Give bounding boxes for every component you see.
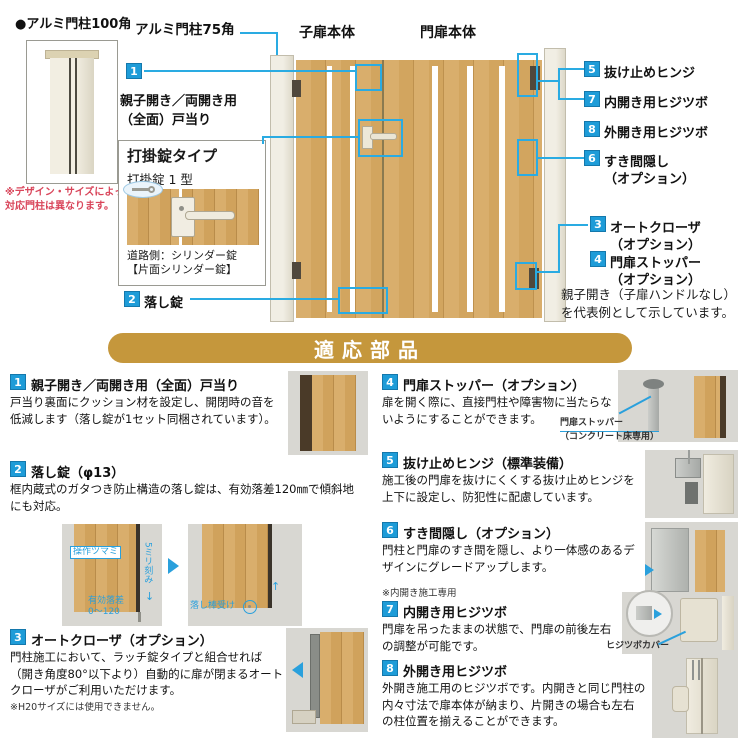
- leader-line: [558, 224, 588, 226]
- child-door: [296, 60, 382, 318]
- callout-box-gap-cover: [517, 139, 538, 176]
- hijitsubo-cover: [680, 598, 718, 642]
- leader-line: [240, 32, 278, 34]
- part2-label-tsumami: 操作ツマミ: [70, 546, 121, 559]
- callout-1-label: 親子開き／両開き用 （全面）戸当り: [120, 90, 237, 128]
- hinge-mark: [292, 262, 301, 279]
- receiver-dot: [248, 605, 251, 608]
- callout-5-badge: 5: [584, 61, 600, 77]
- door-slit: [467, 66, 473, 312]
- leader-line: [262, 136, 264, 144]
- hijitsubo-knuckle: [672, 686, 689, 712]
- gate-right-post: [544, 48, 566, 322]
- lock-type-title: 打掛錠タイプ: [127, 145, 217, 166]
- leader-line: [262, 136, 360, 138]
- leader-line: [144, 70, 355, 72]
- part6-desc: 門柱と門扉のすき間を隠し、より一体感のあるデザインにグレードアップします。: [382, 542, 640, 575]
- door-slit: [350, 66, 355, 312]
- drop-bolt-edge2: [268, 524, 272, 608]
- callout-3-label2: （オプション）: [610, 234, 701, 253]
- part7-badge: 7: [382, 601, 398, 617]
- key-icon: [123, 181, 163, 198]
- callout-1-label-line1: 親子開き／両開き用: [120, 90, 237, 109]
- part4-caption-line2: （コンクリート床専用）: [560, 432, 659, 444]
- stopper-door-edge: [720, 376, 726, 438]
- catalog-page: ●アルミ門柱100角 ※デザイン・サイズによって 対応門柱は異なります。 アルミ…: [0, 0, 740, 740]
- closer-base: [292, 710, 316, 724]
- section-banner-title: 適応部品: [314, 334, 426, 363]
- post100-label: ●アルミ門柱100角: [15, 13, 131, 32]
- callout-7-badge: 7: [584, 91, 600, 107]
- part1-badge: 1: [10, 374, 26, 390]
- callout-box-hinge-top: [517, 53, 538, 97]
- lock-lever: [185, 211, 235, 220]
- part8-title: 外開き用ヒジツボ: [403, 661, 507, 680]
- main-door-label: 門扉本体: [420, 22, 476, 42]
- hijitsubo-pin: [692, 660, 694, 680]
- key-bow: [148, 186, 155, 193]
- part1-title: 親子開き／両開き用（全面）戸当り: [31, 375, 239, 394]
- hinge-post: [703, 454, 734, 514]
- part6-note: ※内開き施工専用: [382, 585, 456, 599]
- part2-label-rakusa-line2: 0〜120: [88, 607, 124, 618]
- callout-8-badge: 8: [584, 121, 600, 137]
- part2-desc: 框内蔵式のガタつき防止構造の落し錠は、有効落差120㎜で傾斜地にも対応。: [10, 481, 362, 514]
- door-slit: [327, 66, 332, 312]
- post-groove: [69, 58, 71, 174]
- arrow-right-icon: [654, 609, 662, 619]
- post100-note-line2: 対応門柱は異なります。: [5, 200, 134, 214]
- callout-box-todomari: [355, 64, 382, 91]
- arrow-up-icon: ↑: [271, 580, 280, 594]
- leader-line: [558, 98, 584, 100]
- part2-label-rakusa: 有効落差 0〜120: [88, 596, 124, 619]
- callout-4-badge: 4: [590, 251, 606, 267]
- part5-desc: 施工後の門扉を抜けにくくする抜け止めヒンジを上下に設定し、防犯性に配慮しています…: [382, 472, 640, 505]
- stopper-door: [694, 376, 720, 438]
- hijitsubo-metal: [636, 606, 652, 620]
- leader-line: [558, 224, 560, 273]
- door-center-gap: [382, 60, 384, 318]
- arrow-right-icon: [645, 564, 654, 576]
- post-groove: [75, 58, 77, 174]
- lock-keyhole: [179, 206, 184, 211]
- hinge-mark: [292, 80, 301, 97]
- callout-3-badge: 3: [590, 216, 606, 232]
- part8-desc: 外開き施工用のヒジツボです。内開きと同じ門柱の内々寸法で扉本体が納まり、片開きの…: [382, 680, 646, 730]
- door-slit: [432, 66, 438, 312]
- drop-bolt-edge: [136, 524, 140, 612]
- leader-line: [190, 298, 338, 300]
- part4-badge: 4: [382, 374, 398, 390]
- hinge-body: [685, 482, 698, 504]
- part8-photo: [652, 652, 738, 738]
- leader-line: [538, 80, 558, 82]
- post75-label: アルミ門柱75角: [135, 18, 235, 38]
- part5-badge: 5: [382, 452, 398, 468]
- leader-line: [558, 68, 560, 100]
- part6-badge: 6: [382, 522, 398, 538]
- closer-door: [320, 632, 364, 724]
- door-slit: [499, 66, 505, 312]
- part4-caption-line1: 門扉ストッパー: [560, 418, 659, 432]
- arrow-right-icon: [168, 558, 179, 574]
- part2-label-kizami: 5ミリ刻み: [141, 542, 152, 584]
- door-edge-wood: [312, 375, 356, 451]
- diagram-note: 親子開き（子扉ハンドルなし） を代表例として示しています。: [561, 286, 736, 321]
- diagram-note-line1: 親子開き（子扉ハンドルなし）: [561, 286, 736, 304]
- callout-6-label2: （オプション）: [604, 168, 695, 187]
- part3-badge: 3: [10, 629, 26, 645]
- callout-2-label: 落し錠: [144, 292, 183, 311]
- receiver-circle-icon: [243, 600, 257, 614]
- part5-photo: [645, 450, 738, 518]
- hijitsubo-post: [722, 596, 734, 650]
- lock-captions: 道路側：シリンダー錠 【片面シリンダー錠】: [127, 249, 237, 278]
- callout-8-label: 外開き用ヒジツボ: [604, 122, 708, 141]
- lock-type-box: 打掛錠タイプ 打掛錠 1 型 道路側：シリンダー錠 【片面シリンダー錠】: [118, 140, 266, 286]
- part3-title: オートクローザ（オプション）: [31, 630, 213, 649]
- part1-desc: 戸当り裏面にクッション材を設定し、開閉時の音を低減します（落し錠が1セット同梱さ…: [10, 394, 282, 427]
- gap-cover-post: [651, 528, 689, 592]
- part7-title: 内開き用ヒジツボ: [403, 602, 507, 621]
- callout-5-label: 抜け止めヒンジ: [604, 62, 695, 81]
- post-body: [50, 58, 94, 174]
- child-door-label: 子扉本体: [299, 22, 355, 42]
- callout-2-badge: 2: [124, 291, 140, 307]
- callout-1-label-line2: （全面）戸当り: [120, 109, 237, 128]
- part3-desc: 門柱施工において、ラッチ錠タイプと組合せれば（開き角度80°以下より）自動的に扉…: [10, 649, 284, 699]
- part3-photo: [286, 628, 368, 732]
- callout-box-lock: [358, 119, 403, 157]
- part5-title: 抜け止めヒンジ（標準装備）: [403, 453, 572, 472]
- arrow-down-icon: ↓: [145, 590, 154, 604]
- diagram-note-line2: を代表例として示しています。: [561, 304, 736, 322]
- part3-note: ※H20サイズには使用できません。: [10, 699, 160, 713]
- drop-bolt-door2: [202, 524, 268, 608]
- post100-note: ※デザイン・サイズによって 対応門柱は異なります。: [5, 186, 134, 213]
- gate-left-post: [270, 55, 294, 322]
- section-banner: 適応部品: [108, 333, 632, 363]
- part6-title: すき間隠し（オプション）: [403, 523, 559, 542]
- leader-line: [537, 271, 558, 273]
- callout-7-label: 内開き用ヒジツボ: [604, 92, 708, 111]
- closer-bar: [310, 634, 320, 718]
- part2-badge: 2: [10, 461, 26, 477]
- post100-photo: [26, 40, 118, 184]
- part6-photo: [645, 522, 738, 596]
- callout-1-badge: 1: [126, 63, 142, 79]
- part2-label-uke: 落し棒受け: [190, 601, 235, 612]
- part1-photo: [288, 371, 368, 455]
- post100-note-line1: ※デザイン・サイズによって: [5, 186, 134, 200]
- hijitsubo-pin: [698, 660, 700, 680]
- part4-caption: 門扉ストッパー （コンクリート床専用）: [560, 418, 659, 443]
- gap-cover-door: [695, 530, 725, 592]
- callout-box-drop-bolt: [338, 287, 388, 314]
- door-edge-dark: [300, 375, 312, 451]
- part4-title: 門扉ストッパー（オプション）: [403, 375, 585, 394]
- part7-desc: 門扉を吊ったままの状態で、門扉の前後左右の調整が可能です。: [382, 621, 614, 654]
- lock-caption-1: 道路側：シリンダー錠: [127, 249, 237, 263]
- callout-box-hinge-bottom: [515, 262, 537, 290]
- callout-6-badge: 6: [584, 150, 600, 166]
- hinge-pin: [688, 450, 690, 464]
- arrow-left-icon: [292, 662, 303, 678]
- leader-line: [538, 157, 584, 159]
- leader-line: [558, 68, 584, 70]
- part2-title: 落し錠（φ13）: [31, 462, 124, 481]
- drop-bolt-rod: [138, 612, 141, 622]
- part8-badge: 8: [382, 660, 398, 676]
- stopper-cap: [643, 379, 664, 389]
- part7-inset-circle: [626, 590, 673, 637]
- lock-caption-2: 【片面シリンダー錠】: [127, 263, 237, 277]
- post-seam: [701, 658, 703, 734]
- part2-label-rakusa-line1: 有効落差: [88, 596, 124, 607]
